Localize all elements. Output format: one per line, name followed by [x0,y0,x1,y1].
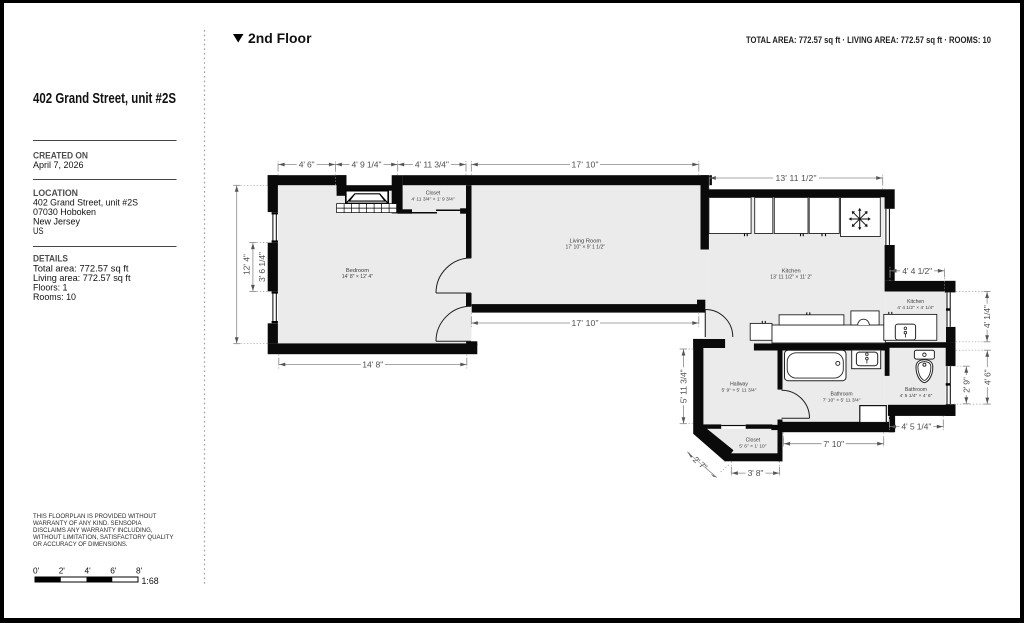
svg-text:Bathroom: Bathroom [831,392,853,398]
svg-text:14' 8": 14' 8" [362,360,383,370]
svg-text:Hallway: Hallway [730,381,748,387]
svg-text:14' 8" × 12' 4": 14' 8" × 12' 4" [342,274,373,280]
svg-text:402 Grand Street, unit #2S: 402 Grand Street, unit #2S [33,91,176,107]
svg-text:Rooms: 10: Rooms: 10 [33,291,76,302]
svg-text:4' 5 1/4": 4' 5 1/4" [901,422,931,432]
svg-text:4' 1/4": 4' 1/4" [982,305,992,328]
svg-text:2nd Floor: 2nd Floor [248,31,312,46]
svg-text:Closet: Closet [426,190,441,196]
svg-text:2' 9": 2' 9" [961,377,971,393]
svg-text:3' 6 1/4": 3' 6 1/4" [257,252,267,282]
svg-text:0': 0' [33,566,40,576]
svg-text:4': 4' [85,566,92,576]
svg-text:5' 11 3/4": 5' 11 3/4" [679,369,689,403]
svg-text:US: US [33,225,44,236]
svg-text:7' 10" × 5' 11 3/4": 7' 10" × 5' 11 3/4" [823,398,861,404]
svg-text:17' 10": 17' 10" [572,318,599,328]
svg-text:17' 10" × 9' 1 1/2": 17' 10" × 9' 1 1/2" [565,244,605,250]
svg-text:TOTAL AREA: 772.57 sq ft · LI: TOTAL AREA: 772.57 sq ft · LIVING AREA: … [746,35,991,45]
svg-text:Closet: Closet [746,438,761,444]
svg-text:Bathroom: Bathroom [905,387,927,393]
svg-text:6': 6' [110,566,117,576]
svg-text:Kitchen: Kitchen [907,299,924,305]
svg-text:4' 9 1/4": 4' 9 1/4" [352,160,382,170]
svg-text:WITHOUT LIMITATION, SATISFACTO: WITHOUT LIMITATION, SATISFACTORY QUALITY [33,534,174,541]
svg-text:4' 11 3/4": 4' 11 3/4" [415,160,449,170]
svg-text:WARRANTY OF ANY KIND. SENSOPIA: WARRANTY OF ANY KIND. SENSOPIA [33,520,142,527]
svg-text:DISCLAIMS ANY WARRANTY INCLUDI: DISCLAIMS ANY WARRANTY INCLUDING, [33,527,153,534]
svg-text:17' 10": 17' 10" [572,160,599,170]
svg-text:4' 5 1/4" × 4' 6": 4' 5 1/4" × 4' 6" [900,393,933,399]
svg-text:8': 8' [136,566,143,576]
svg-text:OR ACCURACY OF DIMENSIONS.: OR ACCURACY OF DIMENSIONS. [33,541,128,548]
svg-text:5' 9" × 5' 11 3/4": 5' 9" × 5' 11 3/4" [721,387,756,393]
svg-text:7' 10": 7' 10" [823,439,844,449]
svg-text:4' 4 1/2": 4' 4 1/2" [902,266,932,276]
svg-text:1:68: 1:68 [142,576,159,586]
svg-text:THIS FLOORPLAN IS PROVIDED WIT: THIS FLOORPLAN IS PROVIDED WITHOUT [33,513,157,520]
svg-text:4' 11 3/4" × 1' 9 3/4": 4' 11 3/4" × 1' 9 3/4" [411,196,454,202]
svg-text:3' 8": 3' 8" [748,468,764,478]
svg-text:13' 11 1/2": 13' 11 1/2" [776,173,817,183]
svg-text:April 7, 2026: April 7, 2026 [33,159,84,170]
svg-text:4' 6": 4' 6" [982,369,992,385]
svg-text:5' 6" × 1' 10": 5' 6" × 1' 10" [739,444,766,450]
svg-text:13' 11 1/2" × 11' 2": 13' 11 1/2" × 11' 2" [770,274,812,280]
svg-text:12' 4": 12' 4" [242,254,252,275]
svg-text:4' 4 1/2" × 4' 1/4": 4' 4 1/2" × 4' 1/4" [897,305,934,311]
svg-text:2': 2' [59,566,66,576]
svg-text:4' 6": 4' 6" [299,160,315,170]
